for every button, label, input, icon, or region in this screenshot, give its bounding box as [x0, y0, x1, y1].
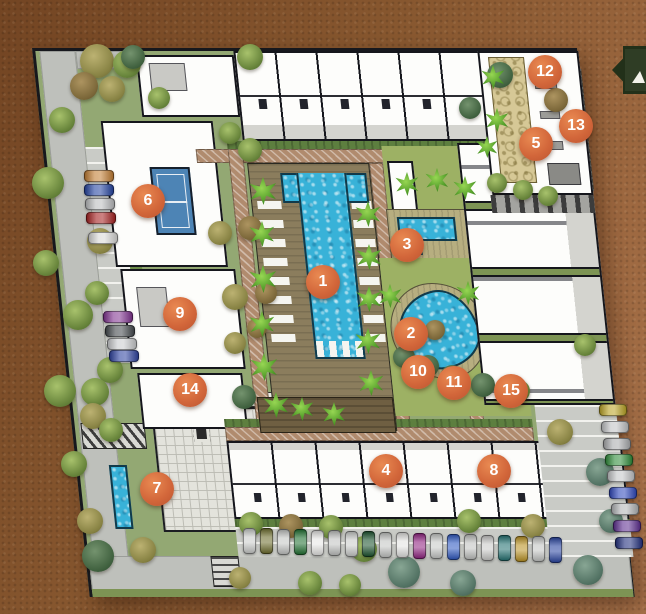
marker-2[interactable]: 2 — [394, 317, 428, 351]
right-parking-apron — [535, 405, 632, 557]
bottom-green-strip — [92, 589, 634, 597]
marker-7[interactable]: 7 — [140, 472, 174, 506]
marker-5[interactable]: 5 — [519, 127, 553, 161]
marker-8[interactable]: 8 — [477, 454, 511, 488]
entry-steps — [210, 556, 241, 587]
marker-9[interactable]: 9 — [163, 297, 197, 331]
clubhouse-furniture — [540, 111, 561, 119]
site-plan-viewport: 123456789101112131415 — [0, 0, 646, 614]
marker-14[interactable]: 14 — [173, 373, 207, 407]
marker-3[interactable]: 3 — [390, 228, 424, 262]
marker-1[interactable]: 1 — [306, 265, 340, 299]
clubhouse-kitchen — [547, 163, 581, 185]
marker-12[interactable]: 12 — [528, 55, 562, 89]
marker-4[interactable]: 4 — [369, 454, 403, 488]
crosswalk — [80, 423, 147, 449]
townhouse-row-top — [233, 51, 489, 141]
corner-ribbon-panel — [625, 49, 646, 91]
marker-13[interactable]: 13 — [559, 109, 593, 143]
top-left-apron — [75, 51, 133, 69]
bottom-road — [88, 556, 633, 592]
building-block-a-roof — [149, 63, 188, 91]
marker-15[interactable]: 15 — [494, 374, 528, 408]
pool-pavilion — [387, 161, 418, 211]
marker-11[interactable]: 11 — [437, 366, 471, 400]
sail-triangle-icon — [632, 71, 645, 83]
corner-ribbon-tab[interactable] — [612, 46, 646, 94]
pool-steps — [316, 341, 368, 357]
utility-strip — [490, 195, 595, 213]
marker-10[interactable]: 10 — [401, 355, 435, 389]
timber-deck — [257, 397, 397, 433]
marker-6[interactable]: 6 — [131, 184, 165, 218]
